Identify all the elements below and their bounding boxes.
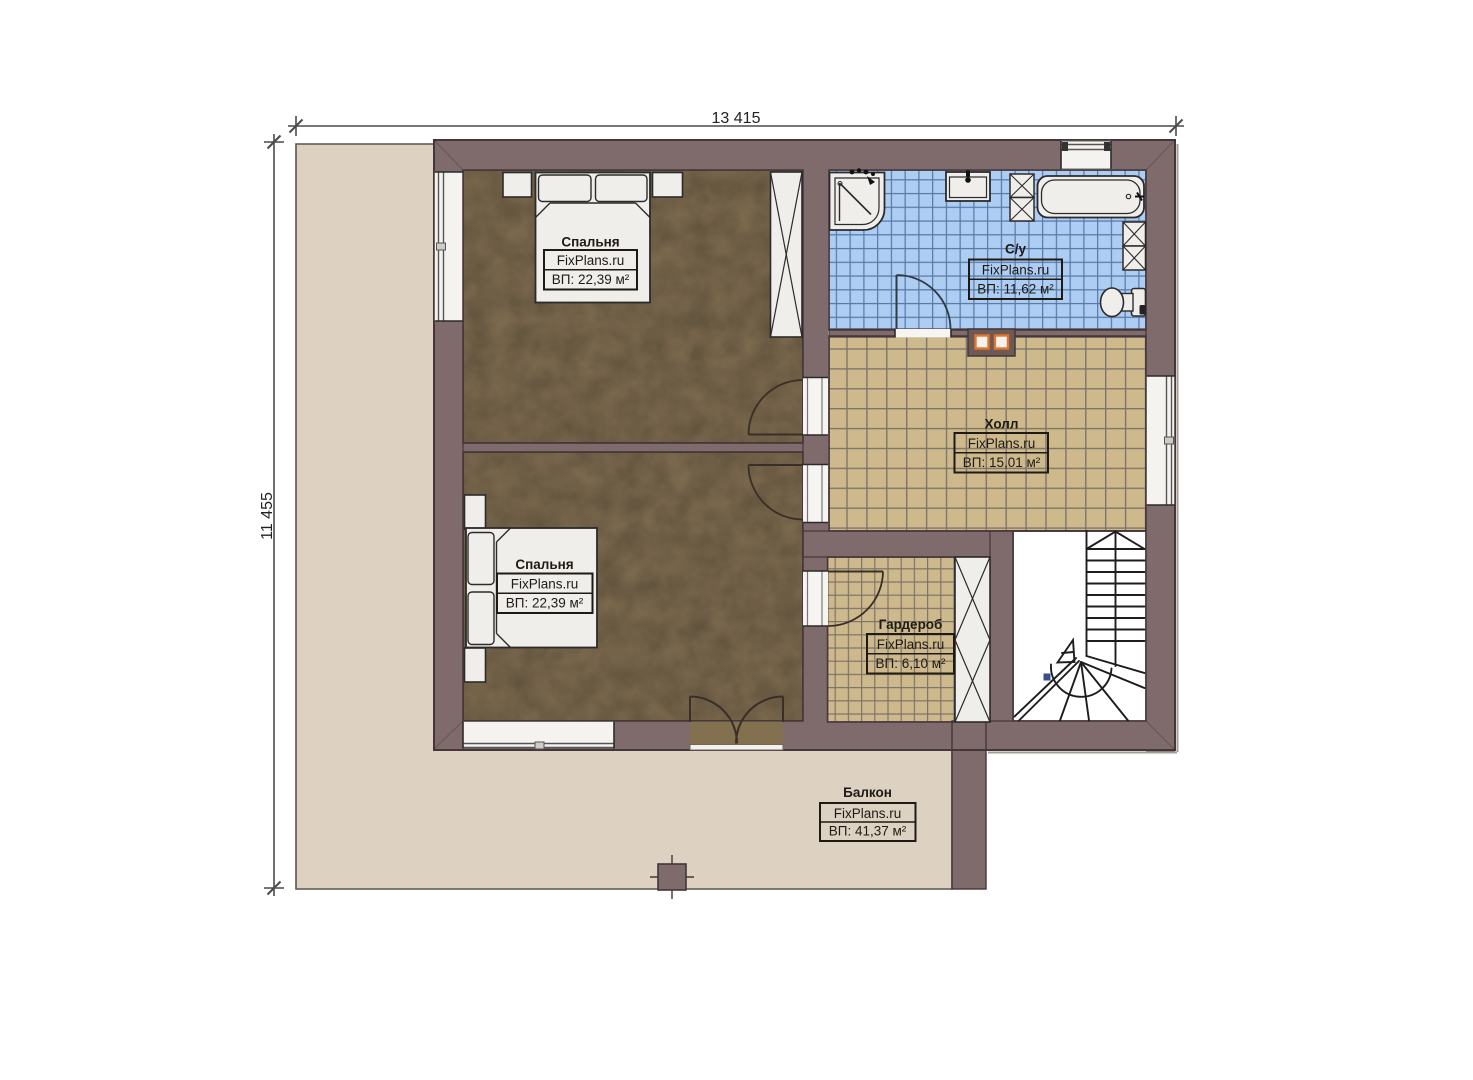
svg-text:FixPlans.ru: FixPlans.ru — [557, 253, 625, 268]
svg-text:Холл: Холл — [985, 417, 1019, 432]
svg-text:Гардероб: Гардероб — [879, 617, 943, 632]
svg-text:ВП: 22,39 м²: ВП: 22,39 м² — [506, 596, 584, 611]
svg-text:FixPlans.ru: FixPlans.ru — [511, 577, 579, 592]
svg-text:С/у: С/у — [1005, 242, 1027, 257]
svg-text:11 455: 11 455 — [259, 492, 276, 540]
svg-text:FixPlans.ru: FixPlans.ru — [877, 637, 945, 652]
svg-text:ВП: 15,01 м²: ВП: 15,01 м² — [963, 455, 1041, 470]
svg-text:Спальня: Спальня — [561, 235, 619, 250]
svg-text:FixPlans.ru: FixPlans.ru — [968, 436, 1036, 451]
svg-text:13 415: 13 415 — [712, 110, 761, 127]
svg-text:FixPlans.ru: FixPlans.ru — [982, 263, 1050, 278]
svg-text:ВП: 41,37 м²: ВП: 41,37 м² — [829, 824, 907, 839]
svg-text:Спальня: Спальня — [515, 557, 573, 572]
svg-text:ВП: 22,39 м²: ВП: 22,39 м² — [552, 272, 630, 287]
svg-text:ВП: 6,10 м²: ВП: 6,10 м² — [875, 656, 946, 671]
svg-text:Балкон: Балкон — [843, 785, 892, 800]
svg-text:FixPlans.ru: FixPlans.ru — [834, 806, 902, 821]
svg-text:ВП: 11,62 м²: ВП: 11,62 м² — [977, 282, 1054, 297]
